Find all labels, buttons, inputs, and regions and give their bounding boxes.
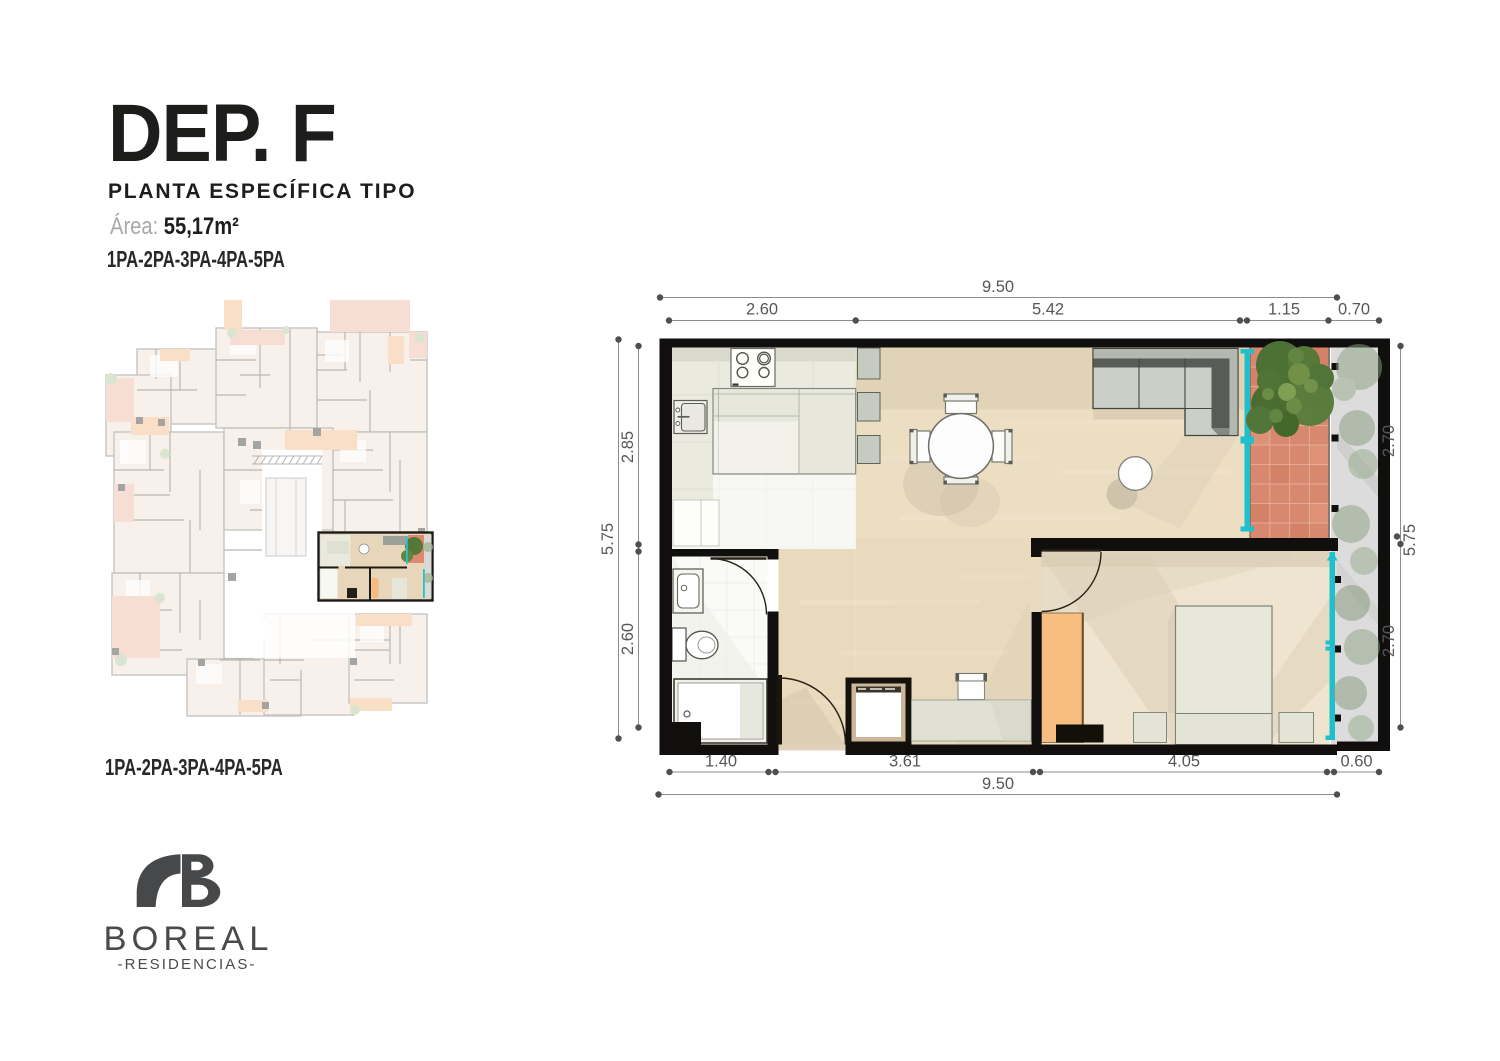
svg-text:0.70: 0.70 — [1338, 301, 1370, 319]
svg-text:9.50: 9.50 — [982, 278, 1014, 296]
svg-text:1.40: 1.40 — [705, 753, 737, 771]
svg-text:2.60: 2.60 — [746, 301, 778, 319]
svg-text:1.15: 1.15 — [1268, 301, 1300, 319]
svg-text:2.70: 2.70 — [1380, 625, 1398, 657]
svg-text:9.50: 9.50 — [982, 775, 1014, 793]
svg-text:2.70: 2.70 — [1380, 425, 1398, 457]
svg-text:5.42: 5.42 — [1032, 301, 1064, 319]
svg-text:0.60: 0.60 — [1340, 753, 1372, 771]
svg-text:4.05: 4.05 — [1168, 753, 1200, 771]
svg-text:5.75: 5.75 — [599, 523, 617, 555]
svg-text:5.75: 5.75 — [1401, 524, 1419, 556]
svg-text:3.61: 3.61 — [889, 753, 921, 771]
svg-text:2.60: 2.60 — [619, 623, 637, 655]
svg-text:2.85: 2.85 — [619, 431, 637, 463]
